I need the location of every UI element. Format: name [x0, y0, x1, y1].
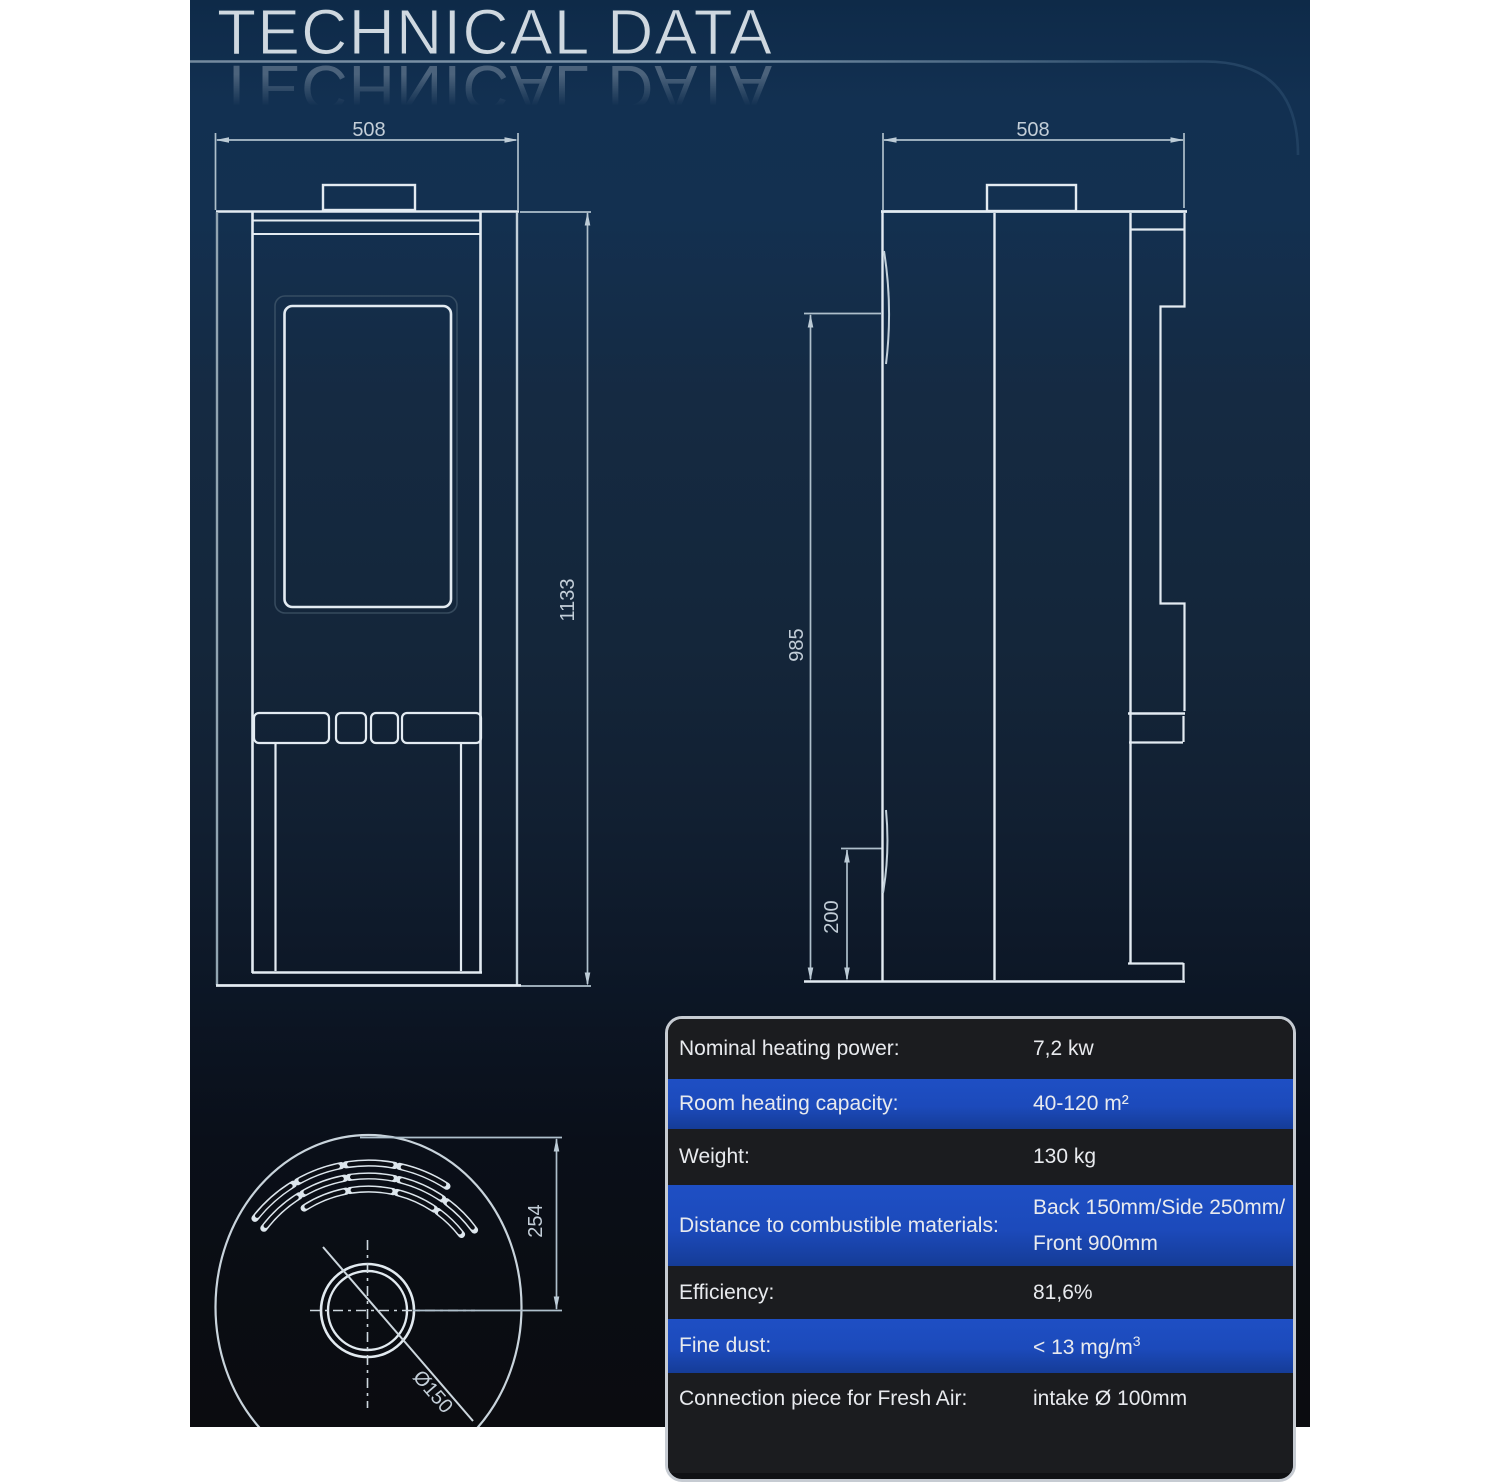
svg-text:Ø150: Ø150: [408, 1366, 457, 1417]
svg-text:985: 985: [786, 628, 808, 661]
svg-text:508: 508: [1016, 119, 1049, 141]
svg-text:1133: 1133: [557, 578, 579, 621]
svg-text:200: 200: [821, 900, 843, 933]
svg-text:508: 508: [352, 119, 385, 141]
svg-text:254: 254: [525, 1204, 547, 1237]
